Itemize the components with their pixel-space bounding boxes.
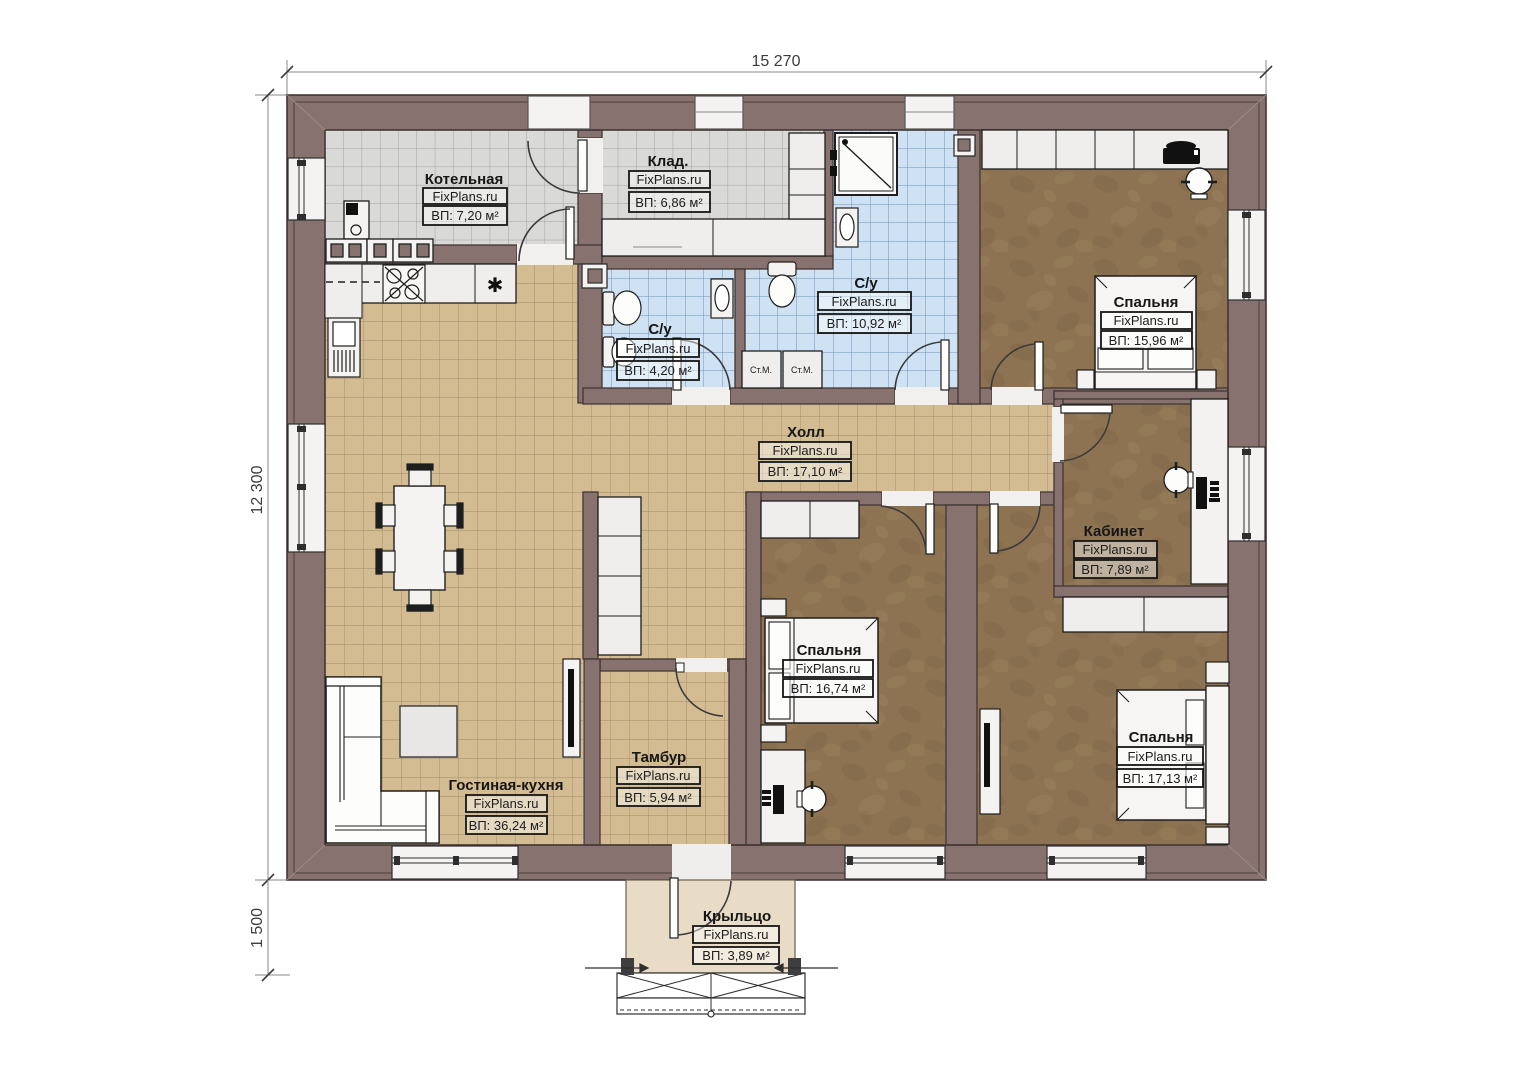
svg-text:ВП: 17,13 м²: ВП: 17,13 м²	[1123, 771, 1198, 786]
svg-text:ВП: 5,94 м²: ВП: 5,94 м²	[624, 790, 692, 805]
svg-text:12 300: 12 300	[249, 465, 266, 514]
svg-text:С/у: С/у	[854, 275, 878, 292]
svg-text:ВП: 7,89 м²: ВП: 7,89 м²	[1081, 562, 1149, 577]
svg-text:ВП: 16,74 м²: ВП: 16,74 м²	[791, 681, 866, 696]
svg-text:1 500: 1 500	[249, 908, 266, 948]
svg-text:FixPlans.ru: FixPlans.ru	[1127, 749, 1192, 764]
svg-text:Спальня: Спальня	[797, 642, 862, 659]
svg-text:Гостиная-кухня: Гостиная-кухня	[449, 777, 564, 794]
svg-text:ВП: 3,89 м²: ВП: 3,89 м²	[702, 948, 770, 963]
svg-text:FixPlans.ru: FixPlans.ru	[772, 443, 837, 458]
svg-text:FixPlans.ru: FixPlans.ru	[625, 341, 690, 356]
svg-text:ВП: 15,96 м²: ВП: 15,96 м²	[1109, 333, 1184, 348]
svg-text:FixPlans.ru: FixPlans.ru	[1082, 542, 1147, 557]
svg-text:ВП: 4,20 м²: ВП: 4,20 м²	[624, 363, 692, 378]
svg-text:✱: ✱	[487, 275, 504, 297]
svg-text:FixPlans.ru: FixPlans.ru	[625, 768, 690, 783]
svg-text:FixPlans.ru: FixPlans.ru	[795, 661, 860, 676]
svg-text:Котельная: Котельная	[425, 171, 504, 188]
svg-text:FixPlans.ru: FixPlans.ru	[703, 927, 768, 942]
svg-text:Ст.М.: Ст.М.	[750, 365, 772, 375]
svg-text:Спальня: Спальня	[1114, 294, 1179, 311]
svg-text:ВП: 7,20 м²: ВП: 7,20 м²	[431, 208, 499, 223]
svg-text:FixPlans.ru: FixPlans.ru	[473, 796, 538, 811]
svg-text:ВП: 36,24 м²: ВП: 36,24 м²	[469, 818, 544, 833]
svg-text:Крыльцо: Крыльцо	[703, 908, 771, 925]
svg-text:Клад.: Клад.	[648, 153, 689, 170]
svg-text:Ст.М.: Ст.М.	[791, 365, 813, 375]
svg-text:ВП: 17,10 м²: ВП: 17,10 м²	[768, 464, 843, 479]
svg-text:FixPlans.ru: FixPlans.ru	[1113, 313, 1178, 328]
svg-text:FixPlans.ru: FixPlans.ru	[831, 294, 896, 309]
svg-text:Холл: Холл	[787, 424, 825, 441]
svg-text:Кабинет: Кабинет	[1084, 523, 1145, 540]
svg-text:Тамбур: Тамбур	[632, 749, 686, 766]
svg-text:15 270: 15 270	[752, 53, 801, 70]
svg-text:ВП: 6,86 м²: ВП: 6,86 м²	[635, 195, 703, 210]
svg-text:ВП: 10,92 м²: ВП: 10,92 м²	[827, 316, 902, 331]
svg-text:Спальня: Спальня	[1129, 729, 1194, 746]
svg-text:FixPlans.ru: FixPlans.ru	[432, 189, 497, 204]
svg-text:С/у: С/у	[648, 321, 672, 338]
svg-text:FixPlans.ru: FixPlans.ru	[636, 172, 701, 187]
